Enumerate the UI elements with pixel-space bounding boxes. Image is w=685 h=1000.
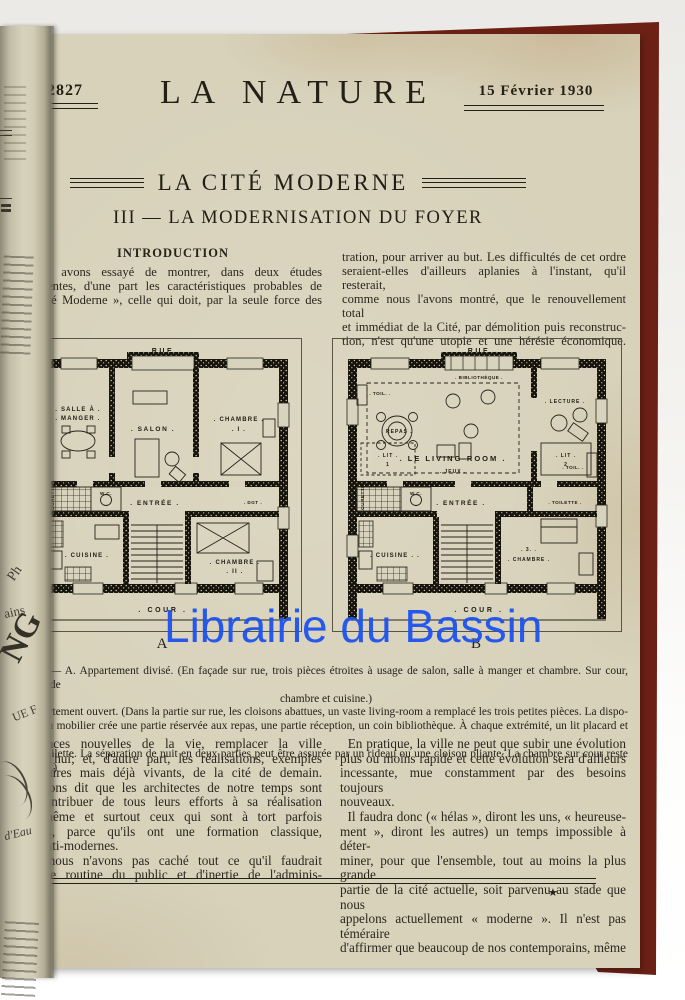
spine-fragment: Ph: [5, 563, 27, 584]
spine-rule: [0, 130, 12, 136]
plan-b-toilette-label: . TOILETTE .: [548, 500, 581, 505]
magazine-page: N° 2827 LA NATURE 15 Février 1930 LA CIT…: [8, 34, 640, 968]
plan-b-lecture-label: . LECTURE .: [545, 399, 585, 405]
svg-text:. II .: . II .: [226, 569, 243, 575]
plan-a-chambre2-label: . CHAMBRE .: [210, 560, 261, 566]
plan-a-stairs: [131, 525, 183, 583]
previous-page-edge: Ph ains NG UE F d'Eau: [0, 26, 54, 978]
series-title: LA CITÉ MODERNE: [158, 170, 409, 196]
issue-date: 15 Février 1930: [466, 83, 606, 100]
spine-tiny-text: [0, 256, 33, 357]
spine-fragment: UE F: [10, 702, 39, 726]
plan-b-jeux-label: . JEUX .: [440, 469, 467, 475]
intro-heading: INTRODUCTION: [24, 246, 322, 261]
plan-b-lit1-label: . LIT .: [378, 453, 398, 459]
plan-b-bibliotheque-label: . BIBLIOTHÈQUE .: [455, 373, 503, 380]
intro-column-right: tration, pour arriver au but. Les diffic…: [342, 250, 626, 348]
journal-masthead: LA NATURE: [68, 74, 528, 112]
plan-a-chambre1-label: . CHAMBRE .: [214, 417, 265, 423]
plan-b-living-room-label: . LE LIVING-ROOM .: [400, 454, 507, 463]
plan-a-entree-label: . ENTRÉE .: [130, 498, 180, 507]
floor-plan-a: . RUE .: [24, 338, 302, 632]
body-column-right: En pratique, la ville ne peut que subir …: [340, 737, 626, 956]
bottom-rule: [24, 878, 596, 884]
plan-b-toil-left-label: . TOIL. .: [369, 391, 390, 396]
article-title-row: LA CITÉ MODERNE: [68, 170, 528, 196]
svg-text:2: 2: [564, 462, 568, 468]
svg-text:1: 1: [386, 462, 390, 468]
plan-b-lit2-label: . LIT .: [556, 453, 576, 459]
plan-b-stairs: [441, 525, 493, 583]
plan-a-wc-label: W.C.: [100, 491, 112, 496]
plan-b-furniture: [357, 383, 597, 575]
floor-plan-a-drawing: . RUE .: [25, 339, 301, 631]
svg-text:. MANGER .: . MANGER .: [55, 416, 100, 422]
svg-text:. CHAMBRE .: . CHAMBRE .: [508, 557, 550, 563]
body-column-left: ingences nouvelles de la vie, remplacer …: [24, 737, 322, 883]
plan-a-salle-a-manger-label: . SALLE À .: [55, 406, 101, 413]
issue-date-underline: [464, 105, 604, 111]
plan-b-entree-label: . ENTRÉE .: [436, 498, 486, 507]
plan-a-cuisine-label: . CUISINE .: [65, 553, 109, 559]
spine-tiny-text: [1, 921, 39, 997]
plan-b-cuisine-label: . CUISINE . .: [370, 553, 420, 559]
plan-b-chambre3-label: . 3. .: [521, 547, 537, 553]
intro-column-left: Nous avons essayé de montrer, dans deux …: [24, 265, 322, 307]
book-photo: N° 2827 LA NATURE 15 Février 1930 LA CIT…: [0, 0, 685, 1000]
footer-star: ★: [548, 886, 558, 899]
spine-rule: [0, 198, 12, 203]
bookseller-watermark: Librairie du Bassin: [164, 599, 542, 653]
article-subtitle: III — LA MODERNISATION DU FOYER: [68, 208, 528, 229]
plan-b-wc-label: W.C.: [410, 491, 422, 496]
plan-a-degagement-label: . DGT .: [244, 500, 262, 505]
floor-plan-b-drawing: . RUE .: [333, 339, 621, 631]
plan-a-salon-label: . SALON .: [131, 426, 175, 433]
plan-a-partitions: [47, 368, 279, 584]
plan-b-courette-label: COURETTE: [360, 484, 365, 513]
title-rule-left: [70, 178, 144, 189]
svg-text:. I .: . I .: [232, 427, 246, 433]
floor-plan-b: . RUE .: [332, 338, 622, 632]
title-rule-right: [422, 178, 526, 189]
plan-b-repas-label: . REPAS .: [381, 429, 412, 435]
spine-fragment: d'Eau: [3, 823, 34, 844]
spine-tiny-text: [4, 86, 26, 166]
